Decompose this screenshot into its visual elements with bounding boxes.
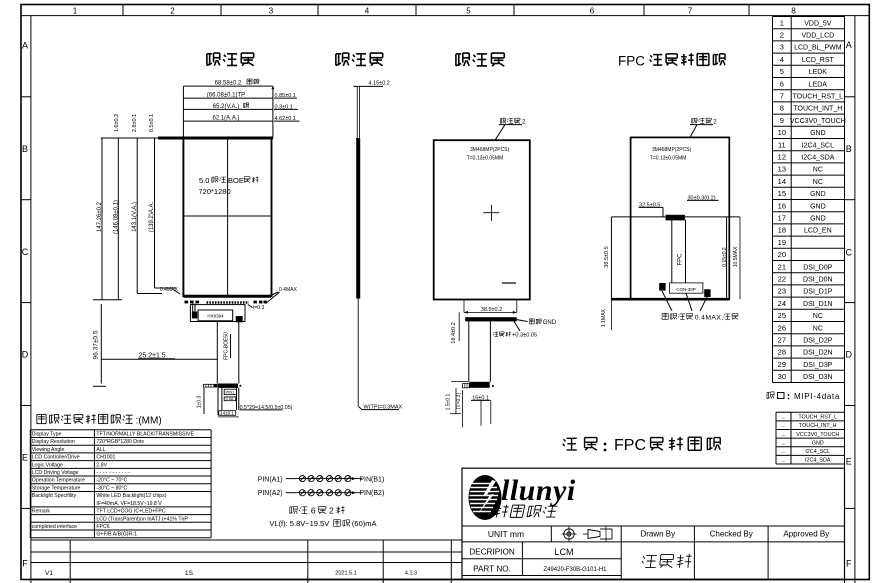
svg-text:-30°C ~ 80°C: -30°C ~ 80°C — [96, 485, 127, 491]
svg-text:6: 6 — [311, 506, 316, 516]
svg-text:96.37±0.5: 96.37±0.5 — [93, 330, 100, 359]
svg-text:Logic Voltage: Logic Voltage — [32, 462, 63, 468]
svg-text:22: 22 — [778, 275, 786, 284]
svg-text:17: 17 — [778, 214, 786, 223]
svg-text:5: 5 — [780, 67, 784, 76]
svg-text:IF=40mA, VF=18.5V~19.8 V: IF=40mA, VF=18.5V~19.8 V — [96, 501, 162, 507]
svg-text:DSI_D2P: DSI_D2P — [803, 338, 833, 345]
svg-text:VL(f): 5.8V~19.5V: VL(f): 5.8V~19.5V — [269, 519, 329, 528]
svg-text:9: 9 — [780, 116, 784, 125]
svg-text:PIN(A1): PIN(A1) — [258, 477, 283, 484]
svg-text:6: 6 — [780, 79, 784, 88]
svg-text:GND: GND — [810, 130, 826, 137]
svg-text:DSI_D0N: DSI_D0N — [803, 277, 833, 284]
svg-text:1.6±0.2: 1.6±0.2 — [114, 114, 120, 132]
svg-text:D: D — [22, 350, 29, 360]
svg-text:NC: NC — [813, 179, 823, 186]
svg-text:8: 8 — [791, 6, 796, 15]
svg-text:B: B — [846, 144, 852, 154]
svg-text:36.5±0.5: 36.5±0.5 — [604, 246, 610, 267]
svg-text:3: 3 — [269, 6, 274, 15]
svg-text:Checked By: Checked By — [710, 530, 753, 539]
svg-text:1S: 1S — [185, 570, 194, 577]
svg-text:30: 30 — [778, 372, 786, 381]
svg-text:HX8394: HX8394 — [207, 314, 224, 319]
svg-text:E: E — [22, 453, 28, 463]
svg-text:TFT LCD+COG IC+LED+FPC: TFT LCD+COG IC+LED+FPC — [96, 509, 165, 515]
svg-text:Z49420-F30B-G101-H1: Z49420-F30B-G101-H1 — [543, 567, 607, 573]
svg-text:Display Resolution: Display Resolution — [32, 439, 75, 445]
svg-text:V1: V1 — [45, 570, 53, 577]
svg-text:LEDA: LEDA — [809, 81, 828, 88]
svg-text:23: 23 — [778, 287, 786, 296]
svg-text:11: 11 — [778, 140, 786, 149]
svg-text:27: 27 — [778, 336, 786, 345]
svg-text:Backlight Specifility: Backlight Specifility — [32, 493, 77, 499]
svg-text:14±0.1: 14±0.1 — [220, 411, 234, 416]
svg-text:TOUCH_RST_L: TOUCH_RST_L — [793, 94, 844, 101]
svg-text:Operation Temperature: Operation Temperature — [32, 478, 85, 484]
svg-text:2021.5.1: 2021.5.1 — [335, 570, 356, 576]
svg-text:0.5±0.1: 0.5±0.1 — [149, 114, 155, 132]
svg-text:CH1001: CH1001 — [96, 455, 115, 461]
svg-text:C: C — [22, 247, 29, 257]
svg-text:Drawn By: Drawn By — [640, 530, 675, 539]
svg-text:+0.3±0.05: +0.3±0.05 — [512, 332, 537, 338]
svg-text:...: ... — [781, 458, 786, 464]
svg-text:14: 14 — [778, 177, 786, 186]
svg-text:F: F — [22, 559, 28, 569]
svg-text:T=0.13±0.05MM: T=0.13±0.05MM — [467, 156, 504, 162]
svg-text:0.5A: 0.5A — [226, 397, 234, 401]
svg-text:1.1MAX: 1.1MAX — [601, 308, 607, 326]
svg-text:GND: GND — [810, 203, 826, 210]
svg-text:CON-30P: CON-30P — [676, 287, 696, 292]
svg-text:GND: GND — [812, 440, 824, 446]
svg-text:8: 8 — [780, 104, 784, 113]
svg-text:7: 7 — [688, 6, 693, 15]
svg-text:(T=0.3): (T=0.3) — [456, 393, 462, 410]
svg-text:B: B — [22, 144, 28, 154]
svg-text:DSI_D0P: DSI_D0P — [803, 264, 833, 271]
svg-text:GND: GND — [543, 320, 557, 326]
svg-text:(60)mA: (60)mA — [352, 519, 377, 528]
svg-text:2: 2 — [713, 120, 717, 126]
svg-text:2: 2 — [170, 6, 175, 15]
svg-text:FPC6: FPC6 — [96, 524, 109, 530]
svg-text:Viewing Angle: Viewing Angle — [32, 447, 65, 453]
svg-text:Remark: Remark — [32, 509, 51, 515]
svg-text:NC: NC — [813, 167, 823, 174]
svg-text:GND: GND — [810, 216, 826, 223]
svg-text:FPC: FPC — [614, 437, 646, 454]
svg-text:completed interface: completed interface — [32, 524, 77, 530]
svg-text:(66.08±0.1)TP: (66.08±0.1)TP — [207, 93, 245, 99]
svg-text:PIN(A2): PIN(A2) — [258, 490, 283, 497]
svg-text:143.1(V.A.): 143.1(V.A.) — [132, 202, 138, 232]
svg-text:2: 2 — [522, 120, 526, 126]
svg-text:720*1280: 720*1280 — [199, 187, 231, 196]
svg-text:BOE: BOE — [228, 176, 244, 185]
svg-text:19: 19 — [778, 238, 786, 247]
svg-text:...: ... — [781, 449, 786, 455]
svg-text:...: ... — [781, 415, 786, 421]
svg-text:5: 5 — [466, 6, 471, 15]
svg-text:5.0: 5.0 — [199, 176, 209, 185]
svg-text:VDD_LCD: VDD_LCD — [802, 33, 835, 40]
svg-text:DSI_D1P: DSI_D1P — [803, 289, 833, 296]
svg-text:DSI_D2N: DSI_D2N — [803, 350, 833, 357]
svg-text:LCD (TransParent)on InATJ (+41: LCD (TransParent)on InATJ (+41% TnP — [96, 516, 188, 522]
svg-text:DSI_D3N: DSI_D3N — [803, 374, 833, 381]
svg-text:G+F/B A/B(G)R-1: G+F/B A/B(G)R-1 — [96, 532, 137, 538]
svg-text:ALL: ALL — [96, 447, 105, 453]
svg-text:GND: GND — [810, 191, 826, 198]
svg-text:3: 3 — [780, 43, 784, 52]
svg-text:T=0.13±0.05MM: T=0.13±0.05MM — [650, 156, 687, 162]
svg-text:2: 2 — [329, 506, 334, 516]
svg-text:16: 16 — [778, 201, 786, 210]
svg-text:1.5±0.1: 1.5±0.1 — [446, 393, 452, 410]
svg-text:Approved By: Approved By — [783, 530, 829, 539]
svg-text:3M468MP(2PCS): 3M468MP(2PCS) — [470, 147, 510, 153]
svg-text:0.4MAX: 0.4MAX — [279, 287, 297, 293]
svg-text:TFT/NORMALLY BLACK/TRANSMISSIV: TFT/NORMALLY BLACK/TRANSMISSIVE — [96, 432, 194, 438]
svg-text:2: 2 — [780, 31, 784, 40]
svg-text:28: 28 — [778, 348, 786, 357]
svg-text:720*RGB*1280 Dots: 720*RGB*1280 Dots — [96, 439, 144, 445]
svg-text:(139.2)A.A.: (139.2)A.A. — [149, 201, 155, 232]
svg-text:1±0.3: 1±0.3 — [197, 396, 203, 409]
svg-text:FPC: FPC — [678, 253, 684, 266]
svg-text:TOUCH_RST_L: TOUCH_RST_L — [798, 415, 837, 421]
svg-text:...: ... — [781, 432, 786, 438]
svg-text:I2C4_SCL: I2C4_SCL — [805, 449, 830, 455]
svg-text:0.4MAX,: 0.4MAX, — [695, 314, 724, 321]
svg-text:0.4MAX: 0.4MAX — [160, 287, 178, 293]
svg-text:21: 21 — [778, 262, 786, 271]
svg-text:llunyi: llunyi — [501, 474, 576, 507]
svg-text:E: E — [846, 457, 852, 467]
svg-text:TOUCH_INT_H: TOUCH_INT_H — [793, 106, 842, 113]
svg-text:(146.08±0.1): (146.08±0.1) — [114, 200, 120, 234]
svg-text:13: 13 — [778, 165, 786, 174]
svg-text:MIPI-4data: MIPI-4data — [794, 392, 840, 401]
svg-text:C: C — [845, 248, 852, 258]
svg-text:FPC-BOE50: FPC-BOE50 — [224, 332, 230, 360]
svg-text:A: A — [846, 40, 852, 50]
svg-text:10.5MAX: 10.5MAX — [733, 246, 739, 267]
svg-text:...: ... — [781, 423, 786, 429]
svg-text:29: 29 — [778, 360, 786, 369]
svg-text:65.2(V.A.): 65.2(V.A.) — [213, 104, 239, 110]
svg-text:18.4±0.2: 18.4±0.2 — [451, 322, 457, 343]
svg-text:PIN(B2): PIN(B2) — [359, 490, 384, 497]
svg-text:12: 12 — [778, 153, 786, 162]
svg-text:F: F — [846, 559, 852, 569]
svg-text:VDD_5V: VDD_5V — [804, 20, 832, 27]
svg-text:4: 4 — [780, 55, 784, 64]
svg-text:NC: NC — [813, 313, 823, 320]
svg-text:DSI_D1N: DSI_D1N — [803, 301, 833, 308]
svg-text:D: D — [845, 350, 852, 360]
svg-text:2.8±0.1: 2.8±0.1 — [132, 114, 138, 132]
svg-text:I2C4_SDA: I2C4_SDA — [801, 155, 834, 162]
svg-text:LCD_EN: LCD_EN — [804, 228, 832, 235]
svg-text:10: 10 — [778, 128, 786, 137]
svg-text:4.1.3: 4.1.3 — [405, 570, 417, 576]
svg-text:26: 26 — [778, 323, 786, 332]
svg-text:NC: NC — [813, 325, 823, 332]
svg-text:2.8V: 2.8V — [96, 462, 107, 468]
svg-text:62.1(A.A.): 62.1(A.A.) — [212, 116, 239, 122]
svg-text:3M468MP(2PCS): 3M468MP(2PCS) — [652, 147, 692, 153]
svg-text:LEDK: LEDK — [809, 69, 828, 76]
svg-text:20: 20 — [778, 250, 786, 259]
svg-text:I2C4_SCL: I2C4_SCL — [802, 142, 834, 149]
svg-text:LCD_RST: LCD_RST — [802, 57, 835, 64]
svg-text:38.5±0.2: 38.5±0.2 — [481, 307, 502, 313]
svg-text:DSI_D3P: DSI_D3P — [803, 362, 833, 369]
svg-text:Storage Temperature: Storage Temperature — [32, 485, 81, 491]
svg-text:4: 4 — [365, 6, 370, 15]
svg-text:FPC: FPC — [618, 54, 645, 69]
svg-text:...: ... — [781, 440, 786, 446]
svg-text:15: 15 — [778, 189, 786, 198]
svg-text:A: A — [22, 41, 28, 51]
svg-text:68.58±0.2: 68.58±0.2 — [215, 81, 242, 87]
svg-text:Display Type: Display Type — [32, 432, 62, 438]
svg-text:25: 25 — [778, 311, 786, 320]
svg-text:UNIT mm: UNIT mm — [488, 529, 524, 539]
svg-text:LCD Controller/Drive: LCD Controller/Drive — [32, 455, 80, 461]
svg-text:7: 7 — [780, 92, 784, 101]
svg-text:LCD Driving Voltage: LCD Driving Voltage — [32, 470, 79, 476]
svg-text:- - - - - - - - - - -: - - - - - - - - - - - — [96, 470, 130, 476]
svg-text:PIN(B1): PIN(B1) — [359, 477, 384, 484]
svg-text:-20°C ~ 70°C: -20°C ~ 70°C — [96, 478, 127, 484]
svg-text:18: 18 — [778, 226, 786, 235]
svg-text:1: 1 — [780, 18, 784, 27]
svg-text:6: 6 — [590, 6, 595, 15]
svg-text:LCM: LCM — [554, 547, 573, 557]
svg-text:LCD_BL_PWM: LCD_BL_PWM — [794, 45, 842, 52]
svg-text:DECRIPION: DECRIPION — [469, 548, 515, 557]
svg-text:PART NO.: PART NO. — [473, 565, 511, 574]
svg-text::(MM): :(MM) — [136, 416, 162, 427]
svg-text:White LED Backlight(12 chips): White LED Backlight(12 chips) — [96, 493, 166, 499]
svg-text:t=0.3: t=0.3 — [253, 305, 264, 311]
svg-text:I2C4_SDA: I2C4_SDA — [805, 458, 831, 464]
svg-text:TOUCH_INT_H: TOUCH_INT_H — [799, 423, 837, 429]
svg-text:4.15±0.2: 4.15±0.2 — [369, 81, 390, 87]
svg-text:PIN1: PIN1 — [226, 390, 236, 395]
svg-text:VCC3V0_TOUCH: VCC3V0_TOUCH — [790, 118, 846, 125]
svg-text:1: 1 — [73, 6, 78, 15]
svg-text:147.26±0.2: 147.26±0.2 — [97, 201, 103, 232]
svg-text:24: 24 — [778, 299, 786, 308]
svg-text:0.15±0.2: 0.15±0.2 — [722, 247, 728, 267]
svg-text:VCC3V0_TOUCH: VCC3V0_TOUCH — [796, 432, 839, 438]
